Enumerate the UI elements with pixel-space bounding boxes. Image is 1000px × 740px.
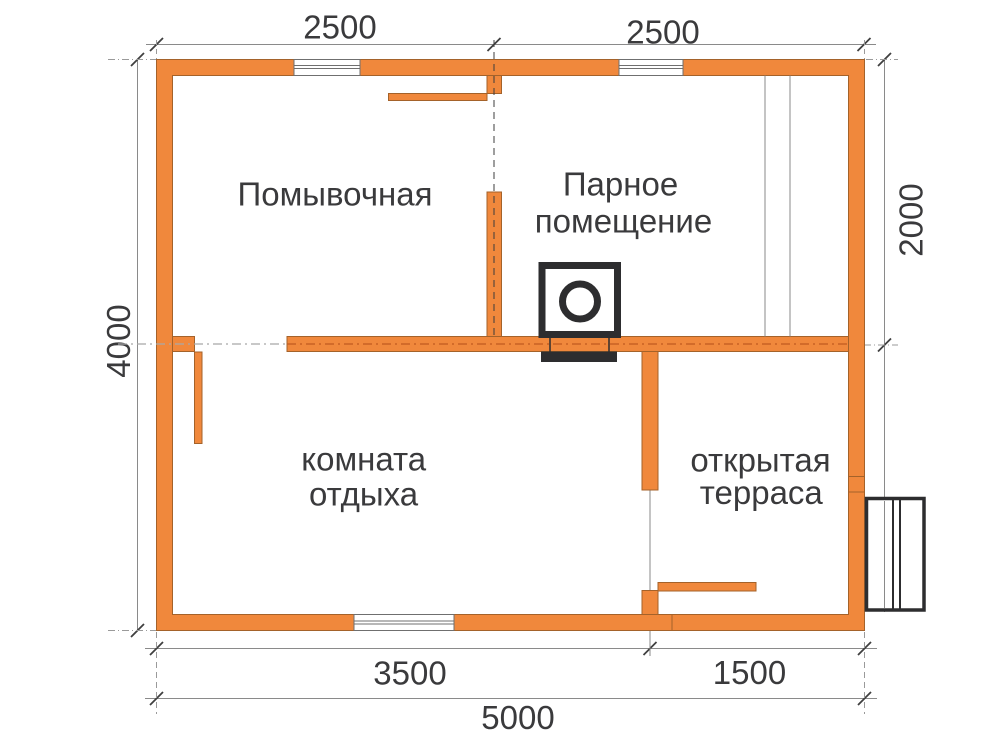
svg-text:терраса: терраса — [700, 474, 824, 511]
svg-text:комната: комната — [301, 441, 426, 478]
svg-text:отдыха: отдыха — [309, 476, 419, 513]
svg-text:2000: 2000 — [893, 183, 930, 256]
svg-text:1500: 1500 — [713, 654, 786, 691]
svg-text:Парное: Парное — [563, 166, 678, 203]
svg-text:помещение: помещение — [535, 202, 712, 239]
svg-text:4000: 4000 — [100, 304, 137, 377]
svg-text:Помывочная: Помывочная — [238, 176, 433, 213]
svg-text:2500: 2500 — [303, 8, 376, 45]
svg-text:3500: 3500 — [373, 655, 446, 692]
svg-text:2500: 2500 — [626, 14, 699, 51]
svg-text:5000: 5000 — [481, 699, 554, 736]
